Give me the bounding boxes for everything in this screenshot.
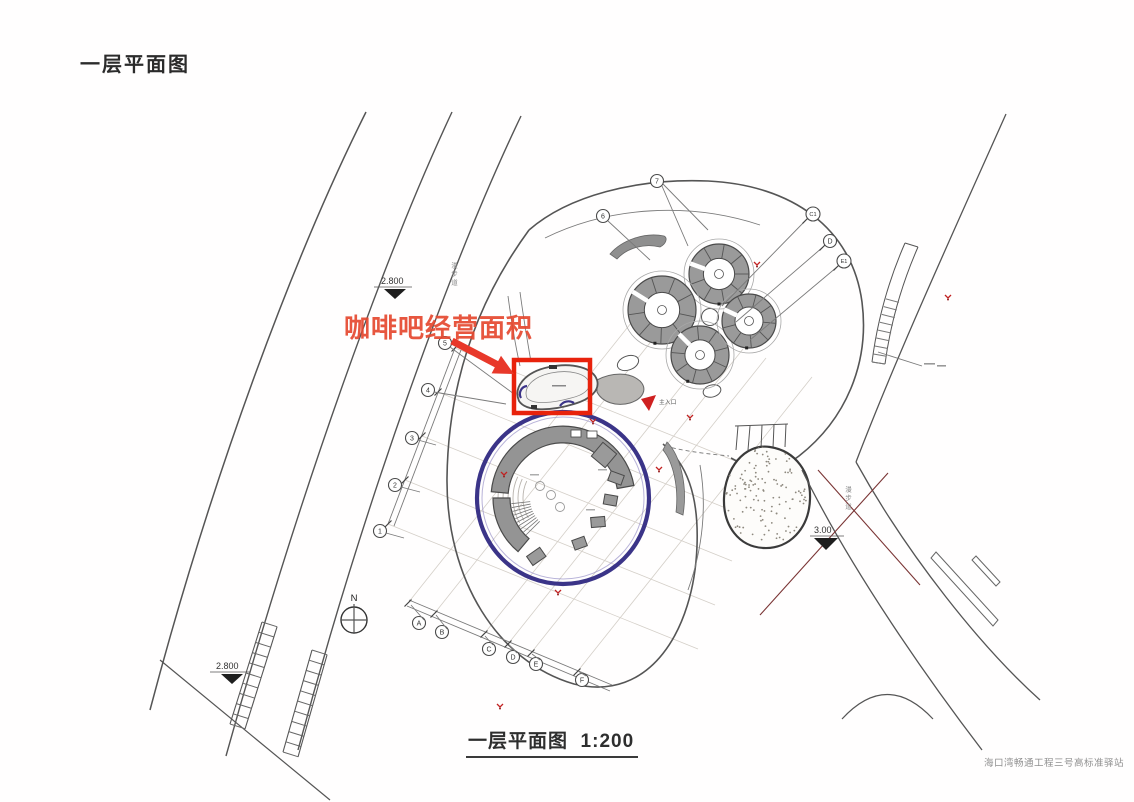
north-label: N — [351, 593, 358, 604]
svg-text:2: 2 — [393, 483, 397, 490]
grid-bubble-d2: D — [824, 235, 837, 248]
drawing-caption: 一层平面图 1:200 — [466, 726, 638, 758]
svg-text:3: 3 — [410, 436, 414, 443]
grid-bubble-d: D — [507, 651, 520, 664]
grid-bubble-7: 7 — [651, 175, 664, 188]
right-roadworks — [760, 114, 1040, 750]
canopy-wedge — [610, 235, 666, 259]
grid-bubble-a: A — [413, 617, 426, 630]
crescent-building — [491, 426, 634, 493]
north-arrow: N — [341, 593, 367, 633]
main-entrance-marker: 主入口 — [641, 395, 677, 411]
svg-text:C1: C1 — [809, 212, 816, 218]
grid-bubble-2: 2 — [389, 479, 402, 492]
grid-bubble-4: 4 — [422, 384, 435, 397]
main-building — [477, 412, 649, 584]
svg-text:7: 7 — [655, 179, 659, 186]
svg-text:A: A — [417, 621, 422, 628]
svg-text:B: B — [440, 630, 445, 637]
svg-text:1: 1 — [378, 529, 382, 536]
floor-plan-page: 一层平面图 — [0, 0, 1134, 802]
site-plan-drawing: 1 2 3 4 5 6 7 C1 D E1 A B C D E F N 2.80… — [0, 0, 1134, 802]
svg-text:E: E — [534, 662, 539, 669]
planter-wedge — [663, 442, 685, 515]
entrance-arrow-icon — [641, 395, 656, 411]
elevation-bottom: 2.800 — [216, 661, 239, 671]
entrance-label: 主入口 — [659, 398, 677, 406]
grid-bubble-e: E — [530, 658, 543, 671]
coffee-bar-annotation: 咖啡吧经营面积 — [344, 308, 533, 345]
pavilion-cluster — [623, 239, 781, 389]
svg-text:6: 6 — [601, 214, 605, 221]
site-boundary — [447, 181, 863, 687]
elevation-top: 2.800 — [381, 276, 404, 286]
road-curves — [150, 112, 521, 800]
coffee-bar-building — [517, 365, 643, 409]
grid-bubble-1: 1 — [374, 525, 387, 538]
grid-bubble-c: C — [483, 643, 496, 656]
project-watermark: 海口湾畅通工程三号高标准驿站 — [984, 755, 1124, 769]
grid-bubble-3: 3 — [406, 432, 419, 445]
svg-text:C: C — [486, 647, 491, 654]
svg-text:D: D — [510, 655, 515, 662]
svg-text:D: D — [827, 239, 832, 246]
elevation-right: 3.00 — [814, 525, 832, 535]
svg-text:E1: E1 — [841, 259, 848, 265]
svg-text:F: F — [580, 678, 584, 685]
pond — [724, 424, 810, 548]
grid-bubble-c1: C1 — [806, 207, 820, 221]
grid-bubble-f: F — [576, 674, 589, 687]
grid-bubble-e1: E1 — [837, 254, 851, 268]
grid-bubble-b: B — [436, 626, 449, 639]
grid-bubble-6: 6 — [597, 210, 610, 223]
svg-text:4: 4 — [426, 388, 430, 395]
